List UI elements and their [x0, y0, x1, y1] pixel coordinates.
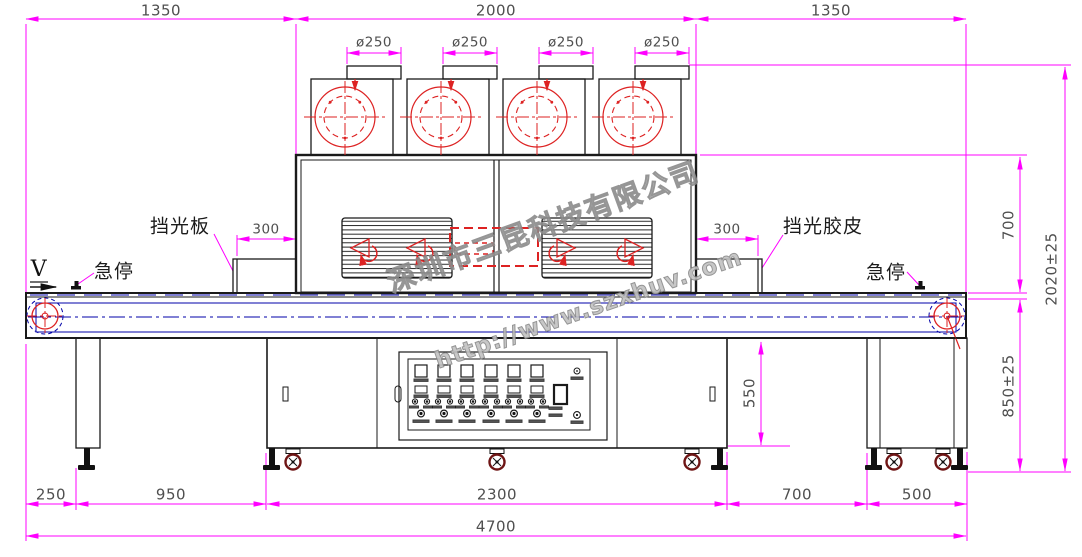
fan-outlet-flange	[635, 66, 689, 79]
label-direction: V	[31, 259, 47, 281]
dim-fan-4: ø250	[644, 36, 680, 50]
drawing-canvas	[0, 0, 1082, 557]
label-estop-left: 急停	[94, 263, 134, 282]
panel-items	[410, 365, 584, 423]
dim-top-center: 2000	[476, 4, 516, 19]
dim-bottom-1: 250	[36, 488, 66, 503]
right-stand	[867, 338, 967, 448]
dim-belt-height: 850±25	[1002, 354, 1017, 417]
main-switch	[554, 385, 567, 404]
left-door-handle	[283, 387, 288, 401]
dim-shield-left: 300	[252, 223, 279, 237]
label-shield-rubber: 挡光胶皮	[783, 218, 863, 237]
right-door-handle	[710, 387, 715, 401]
fan-outlet-flange	[443, 66, 497, 79]
fan-outlet-flange	[347, 66, 401, 79]
dim-oven-height: 700	[1002, 210, 1017, 240]
estop-buttons	[71, 281, 925, 290]
dim-cabinet-height: 550	[743, 378, 758, 408]
casters	[286, 449, 951, 470]
label-shield-plate: 挡光板	[150, 218, 210, 237]
left-stand	[76, 338, 100, 448]
dim-bottom-4: 700	[782, 488, 812, 503]
leveling-feet	[78, 448, 968, 470]
dim-bottom-2: 950	[156, 488, 186, 503]
entrance-shield	[233, 259, 296, 293]
dimension-lines	[26, 19, 1071, 541]
dim-shield-right: 300	[713, 223, 740, 237]
dim-bottom-5: 500	[902, 488, 932, 503]
label-estop-right: 急停	[866, 264, 906, 283]
dim-fan-2: ø250	[452, 36, 488, 50]
dim-total-height: 2020±25	[1045, 232, 1060, 305]
cooling-fans	[304, 66, 689, 155]
dim-fan-1: ø250	[356, 36, 392, 50]
panel-door-handle	[395, 386, 401, 402]
control-panel	[399, 352, 607, 440]
engineering-drawing: 1350 2000 1350 ø250 ø250 ø250 ø250 300 3…	[0, 0, 1082, 557]
fan-outlet-flange	[539, 66, 593, 79]
dim-total-length: 4700	[476, 520, 516, 535]
dim-top-left: 1350	[141, 4, 181, 19]
dim-fan-3: ø250	[548, 36, 584, 50]
dim-bottom-3: 2300	[477, 488, 517, 503]
dim-top-right: 1350	[811, 4, 851, 19]
direction-arrow	[30, 282, 56, 287]
